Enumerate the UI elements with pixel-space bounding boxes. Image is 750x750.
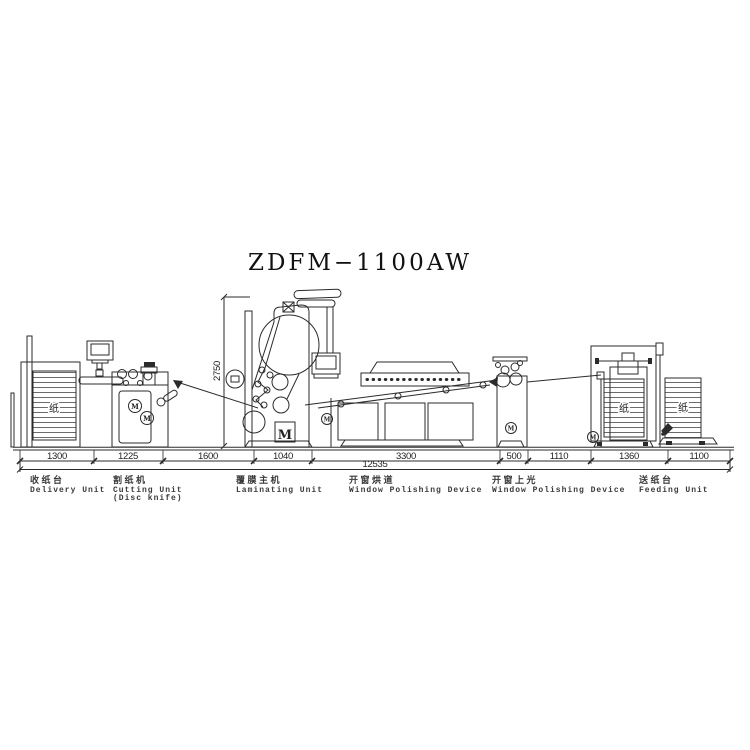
floor-line [13,447,734,450]
unit-name-en: Feeding Unit [639,486,709,495]
dim-value: 1225 [118,451,138,462]
unit-name-zh: 开窗上光 [492,474,538,486]
dim-value: 1360 [619,451,639,462]
unit-name-en: Delivery Unit [30,486,105,495]
dim-value: 1110 [550,451,569,462]
unit-name-en2: (Disc knife) [113,494,183,503]
dim-height-value: 2750 [212,361,223,381]
feed-conveyor-drawing: M [527,372,604,447]
feeding-unit-drawing: 纸 [591,343,663,447]
slitting-knife-icon [141,362,157,385]
unit-label-drying-tunnel: 开窗烘道 Window Polishing Device [349,474,482,495]
dim-total-value: 12535 [363,459,388,470]
unit-name-en: Window Polishing Device [349,486,482,495]
unit-name-en: Laminating Unit [236,486,323,495]
unit-label-feeding: 送纸台 Feeding Unit [638,474,709,495]
diagram-title: ZDFM−1100AW [248,250,472,276]
unit-name-en: Window Polishing Device [492,486,625,495]
paper-stack-label: 纸 [619,402,629,415]
web-direction-arrow [489,377,498,387]
unit-label-laminating: 覆膜主机 Laminating Unit [236,474,323,495]
dim-value: 500 [507,451,522,462]
machine-line-diagram: ZDFM−1100AW 纸 M M [0,0,750,750]
cutting-unit-drawing: M M [112,362,258,447]
dim-value: 1100 [689,451,708,462]
paper-stack-label: 纸 [49,402,59,415]
feed-table-drawing: 纸 [659,378,717,445]
drying-tunnel-drawing: M [305,362,497,447]
motor-label: M [131,402,139,411]
unit-name-zh: 收纸台 [30,474,65,486]
unit-name-zh: 送纸台 [638,474,674,486]
motor-label: M [143,414,151,423]
dim-value: 3300 [396,451,416,462]
motor-label: M [508,426,515,433]
touchscreen-monitor-icon [312,353,340,378]
unit-name-zh: 开窗烘道 [349,474,395,486]
paper-stack-label: 纸 [678,401,688,414]
control-monitor-icon [87,341,113,376]
web-direction-arrow [173,380,183,389]
delivery-unit-drawing: 纸 [11,336,123,447]
unit-label-polishing: 开窗上光 Window Polishing Device [492,474,625,495]
film-loading-frame [283,289,341,353]
unit-label-delivery: 收纸台 Delivery Unit [30,474,105,495]
dim-value: 1300 [47,451,67,462]
dim-value: 1600 [198,451,218,462]
unit-name-zh: 割纸机 [113,474,148,486]
motor-label: M [324,417,331,424]
polishing-unit-drawing: M [489,357,527,447]
diagram-page: ZDFM−1100AW 纸 M M [0,0,750,750]
unit-labels: 收纸台 Delivery Unit 割纸机 Cutting Unit (Disc… [30,474,709,503]
dim-value: 1040 [273,451,293,462]
unit-name-zh: 覆膜主机 [236,474,282,486]
unit-label-cutting: 割纸机 Cutting Unit (Disc knife) [113,474,183,503]
